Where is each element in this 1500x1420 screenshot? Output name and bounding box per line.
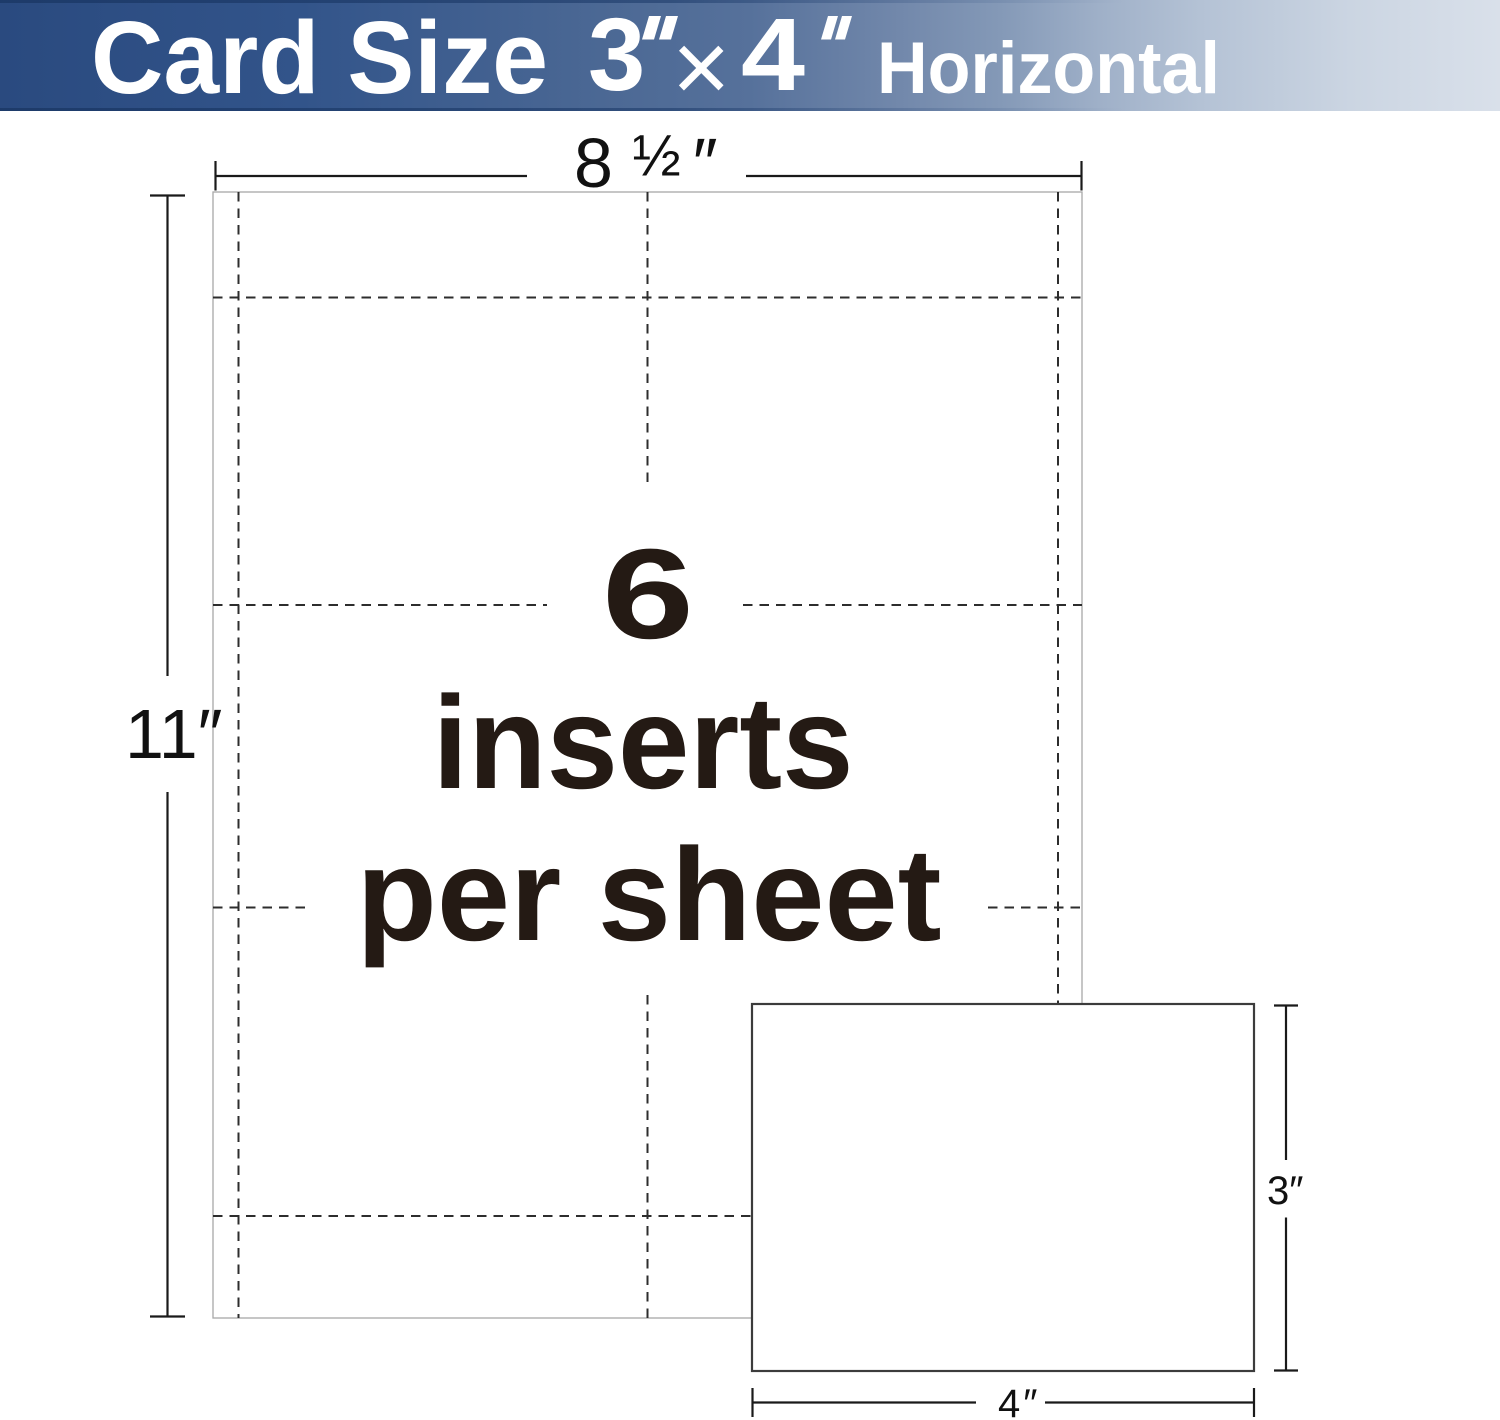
svg-text:3: 3 — [588, 0, 645, 112]
svg-text:4: 4 — [741, 0, 805, 112]
svg-text:Card Size: Card Size — [91, 0, 548, 115]
svg-text:inserts: inserts — [433, 669, 854, 816]
svg-text:×: × — [672, 12, 730, 124]
svg-text:8 ½″: 8 ½″ — [574, 124, 718, 203]
svg-text:11″: 11″ — [125, 695, 222, 773]
svg-text:Horizontal: Horizontal — [877, 28, 1220, 109]
svg-text:4″: 4″ — [998, 1382, 1037, 1420]
svg-text:per sheet: per sheet — [357, 821, 942, 968]
svg-text:3″: 3″ — [1267, 1169, 1303, 1213]
svg-text:6: 6 — [602, 523, 694, 666]
